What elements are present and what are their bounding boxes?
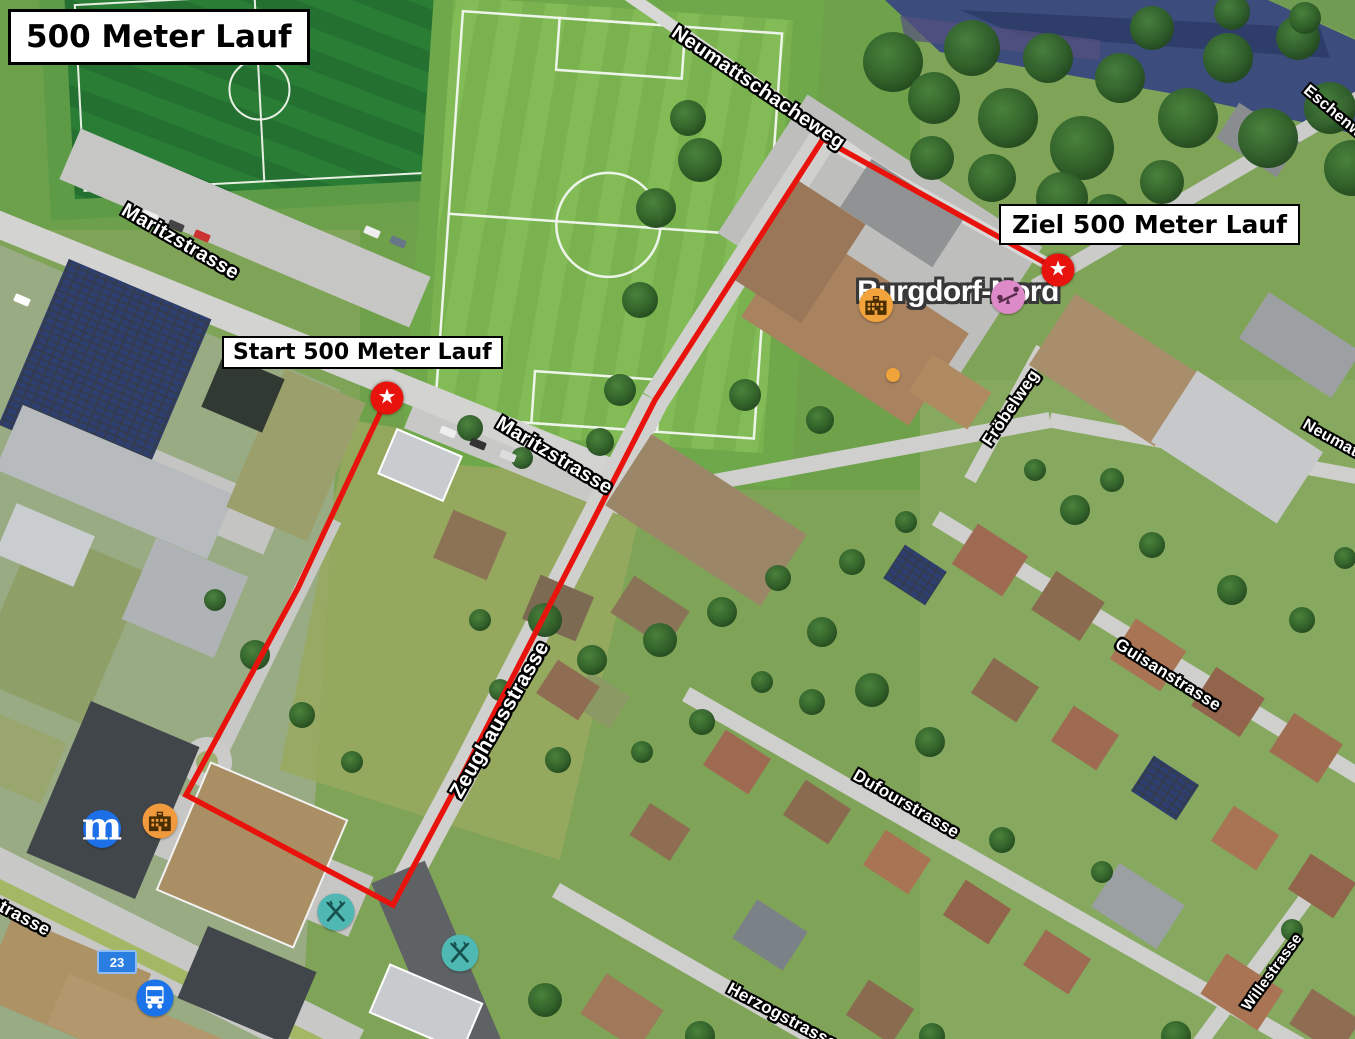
- map-canvas: MaritzstrasseMaritzstrasseNeumattschache…: [0, 0, 1355, 1039]
- bus-stop-icon: [137, 980, 174, 1017]
- road-number-badge: 23: [97, 950, 137, 974]
- ziel-label: Ziel 500 Meter Lauf: [999, 204, 1300, 245]
- start-label: Start 500 Meter Lauf: [222, 336, 503, 369]
- star-icon: ★: [1049, 259, 1068, 280]
- minor-poi-dot: [886, 368, 900, 382]
- poi-layer: m★★: [0, 0, 1355, 1039]
- school-icon: [859, 288, 893, 322]
- supermarket-migros-icon: m: [83, 810, 121, 848]
- start-marker: ★: [371, 382, 404, 415]
- restaurant-icon-2: [442, 935, 479, 972]
- company-building-icon: [143, 804, 178, 839]
- playground-icon: [991, 280, 1025, 314]
- map-title: 500 Meter Lauf: [8, 9, 310, 65]
- ziel-marker: ★: [1042, 254, 1075, 287]
- restaurant-icon: [318, 894, 355, 931]
- star-icon: ★: [378, 387, 397, 408]
